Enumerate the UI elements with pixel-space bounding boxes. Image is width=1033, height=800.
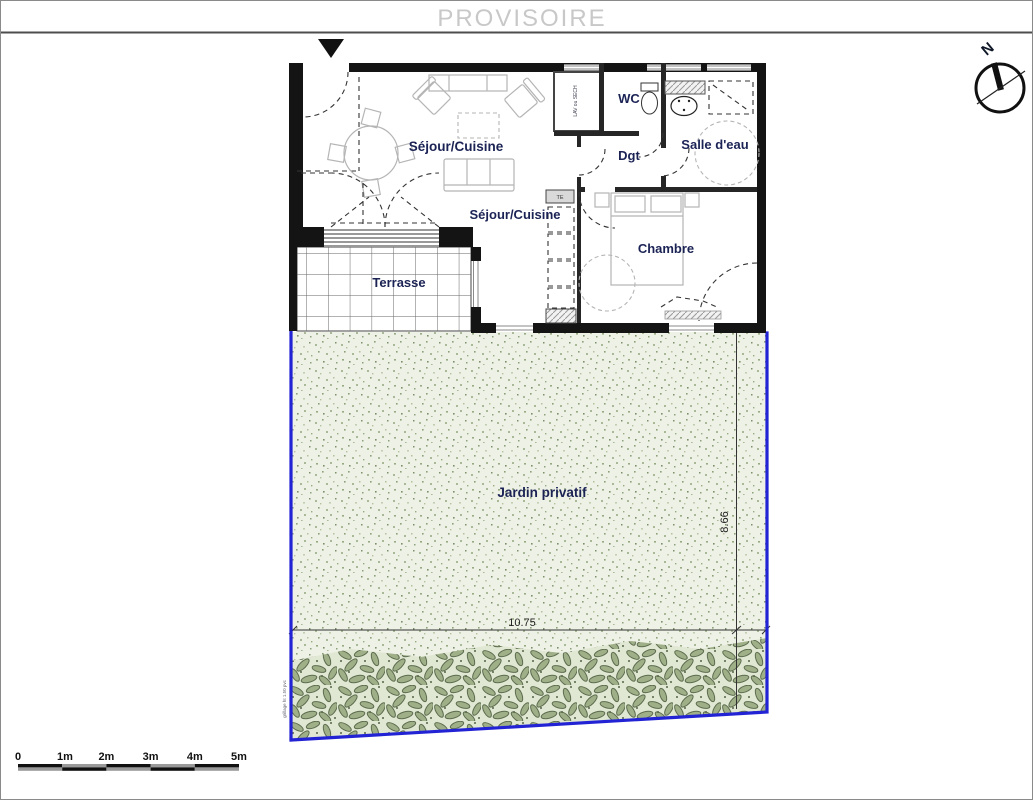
elec-box-label: TE xyxy=(556,195,563,201)
garden-width-dimension: 10.75 xyxy=(508,617,536,629)
scale-bar-segments xyxy=(18,764,239,771)
shower-circle xyxy=(695,121,759,185)
scale-label-2m: 2m xyxy=(98,751,114,763)
room-label-wc: WC xyxy=(618,91,640,106)
garden-area: 10.75 8.66 Jardin privatif grillage ht 1… xyxy=(282,329,770,741)
tv-cabinet xyxy=(429,75,507,91)
fence-note: grillage ht 1.50 pvc xyxy=(282,679,287,718)
bedroom-rug xyxy=(579,255,635,311)
room-label-dgt: Dgt xyxy=(618,148,640,163)
dining-table xyxy=(328,108,415,197)
scale-label-1m: 1m xyxy=(57,751,73,763)
scale-label-3m: 3m xyxy=(143,751,159,763)
room-label-sejour-upper: Séjour/Cuisine xyxy=(409,139,504,154)
scale-label-0: 0 xyxy=(15,751,21,763)
terrasse-french-doors xyxy=(331,173,439,227)
room-label-chambre: Chambre xyxy=(638,241,694,256)
room-label-sejour-lower: Séjour/Cuisine xyxy=(469,207,560,222)
armchair xyxy=(503,77,546,119)
washing-machine-slot xyxy=(709,81,753,114)
scale-bar: 0 1m 2m 3m 4m 5m xyxy=(15,751,247,771)
garden-depth-dimension: 8.66 xyxy=(719,511,731,532)
kitchen-counter xyxy=(546,309,576,323)
room-label-salle-eau: Salle d'eau xyxy=(681,137,748,152)
vanity-counter xyxy=(665,81,705,94)
provisional-watermark: PROVISOIRE xyxy=(437,5,606,32)
floor-plan-drawing: PROVISOIRE N 10.75 8.66 Jardin privatif … xyxy=(1,1,1033,800)
floor-plan-sheet: PROVISOIRE N 10.75 8.66 Jardin privatif … xyxy=(0,0,1033,800)
terrasse: Terrasse xyxy=(297,247,471,331)
sofa xyxy=(444,159,514,191)
toilet-icon xyxy=(641,83,658,114)
bathroom-fixtures xyxy=(641,81,759,185)
north-compass-icon: N xyxy=(976,39,1025,112)
bedroom-furniture xyxy=(579,193,757,321)
scale-label-4m: 4m xyxy=(187,751,203,763)
scale-label-5m: 5m xyxy=(231,751,247,763)
sink-icon xyxy=(671,97,697,116)
entry-triangle-icon xyxy=(318,39,344,58)
bed xyxy=(595,193,699,285)
window-sill xyxy=(665,311,721,319)
north-label: N xyxy=(978,39,997,59)
coffee-table xyxy=(458,113,499,138)
room-label-terrasse: Terrasse xyxy=(372,275,425,290)
room-label-jardin: Jardin privatif xyxy=(497,485,587,500)
closet-label: LAV ou SECH xyxy=(573,85,579,117)
armchair xyxy=(412,76,452,116)
